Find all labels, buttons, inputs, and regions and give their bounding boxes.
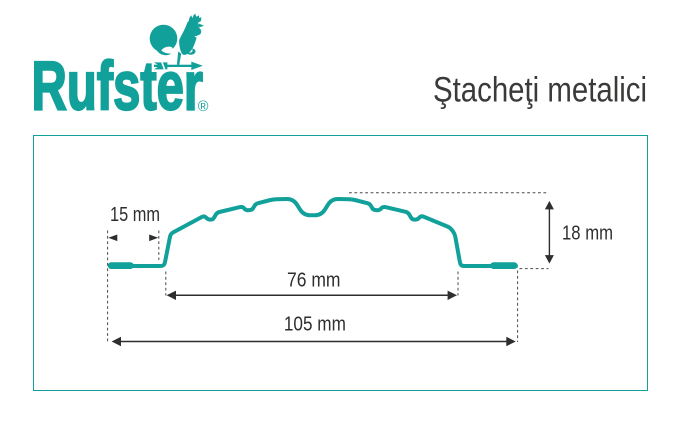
- svg-text:18 mm: 18 mm: [562, 223, 613, 245]
- svg-text:15 mm: 15 mm: [110, 204, 160, 226]
- svg-text:105 mm: 105 mm: [284, 314, 346, 336]
- svg-text:Ştacheţi metalici: Ştacheţi metalici: [433, 71, 647, 110]
- svg-text:®: ®: [198, 99, 209, 115]
- svg-text:Rufster: Rufster: [32, 48, 204, 125]
- svg-text:76 mm: 76 mm: [287, 270, 341, 292]
